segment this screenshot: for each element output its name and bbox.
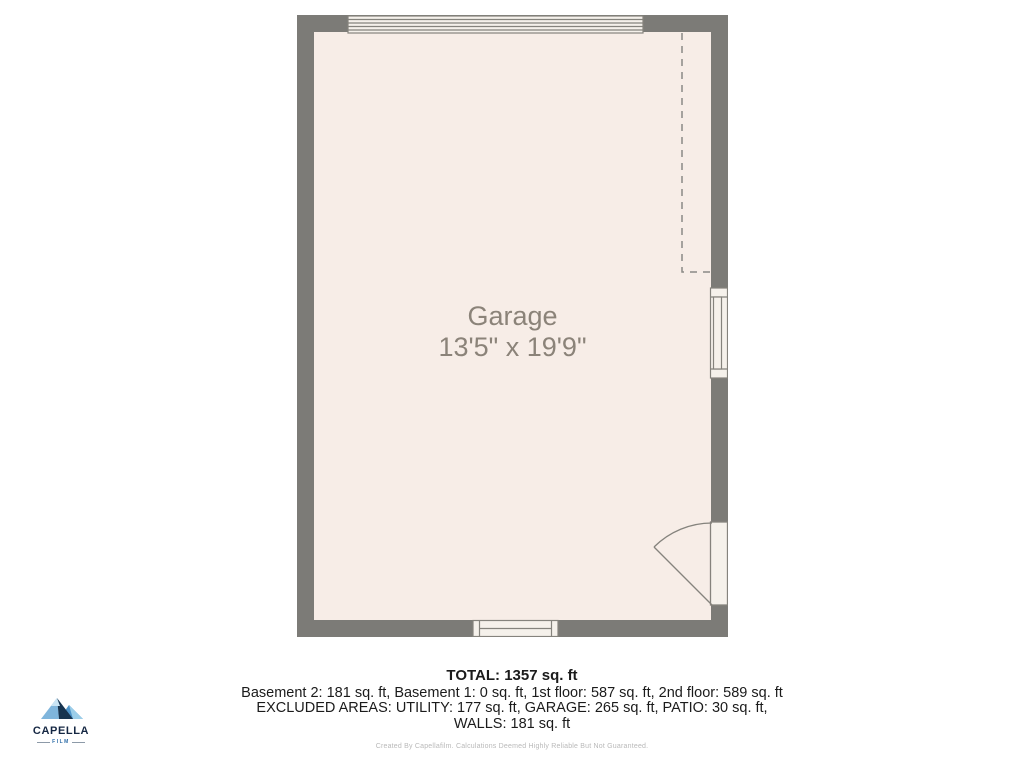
area-summary: TOTAL: 1357 sq. ft Basement 2: 181 sq. f… [0, 668, 1024, 732]
garage-floor-area [314, 32, 711, 620]
logo-rule-left [37, 742, 50, 743]
garage-door-symbol [348, 16, 643, 33]
mountain-icon [33, 697, 89, 720]
excluded-areas-line: EXCLUDED AREAS: UTILITY: 177 sq. ft, GAR… [0, 701, 1024, 717]
disclaimer-text: Created By Capellafilm. Calculations Dee… [0, 743, 1024, 750]
floorplan-drawing [297, 15, 728, 637]
floorplan-page: Garage 13'5" x 19'9" TOTAL: 1357 sq. ft … [0, 0, 1024, 768]
window-symbol-bottom [473, 621, 558, 637]
logo-rule-right [72, 742, 85, 743]
logo-subtitle-row: FILM [31, 739, 91, 745]
total-area-line: TOTAL: 1357 sq. ft [0, 668, 1024, 684]
floorplan: Garage 13'5" x 19'9" [297, 15, 728, 637]
wall-areas-line: WALLS: 181 sq. ft [0, 717, 1024, 733]
capella-logo: CAPELLA FILM [31, 697, 91, 745]
window-symbol-right [711, 288, 728, 378]
logo-brand: CAPELLA [31, 726, 91, 737]
floor-areas-line: Basement 2: 181 sq. ft, Basement 1: 0 sq… [0, 686, 1024, 702]
logo-subtitle: FILM [52, 739, 70, 745]
